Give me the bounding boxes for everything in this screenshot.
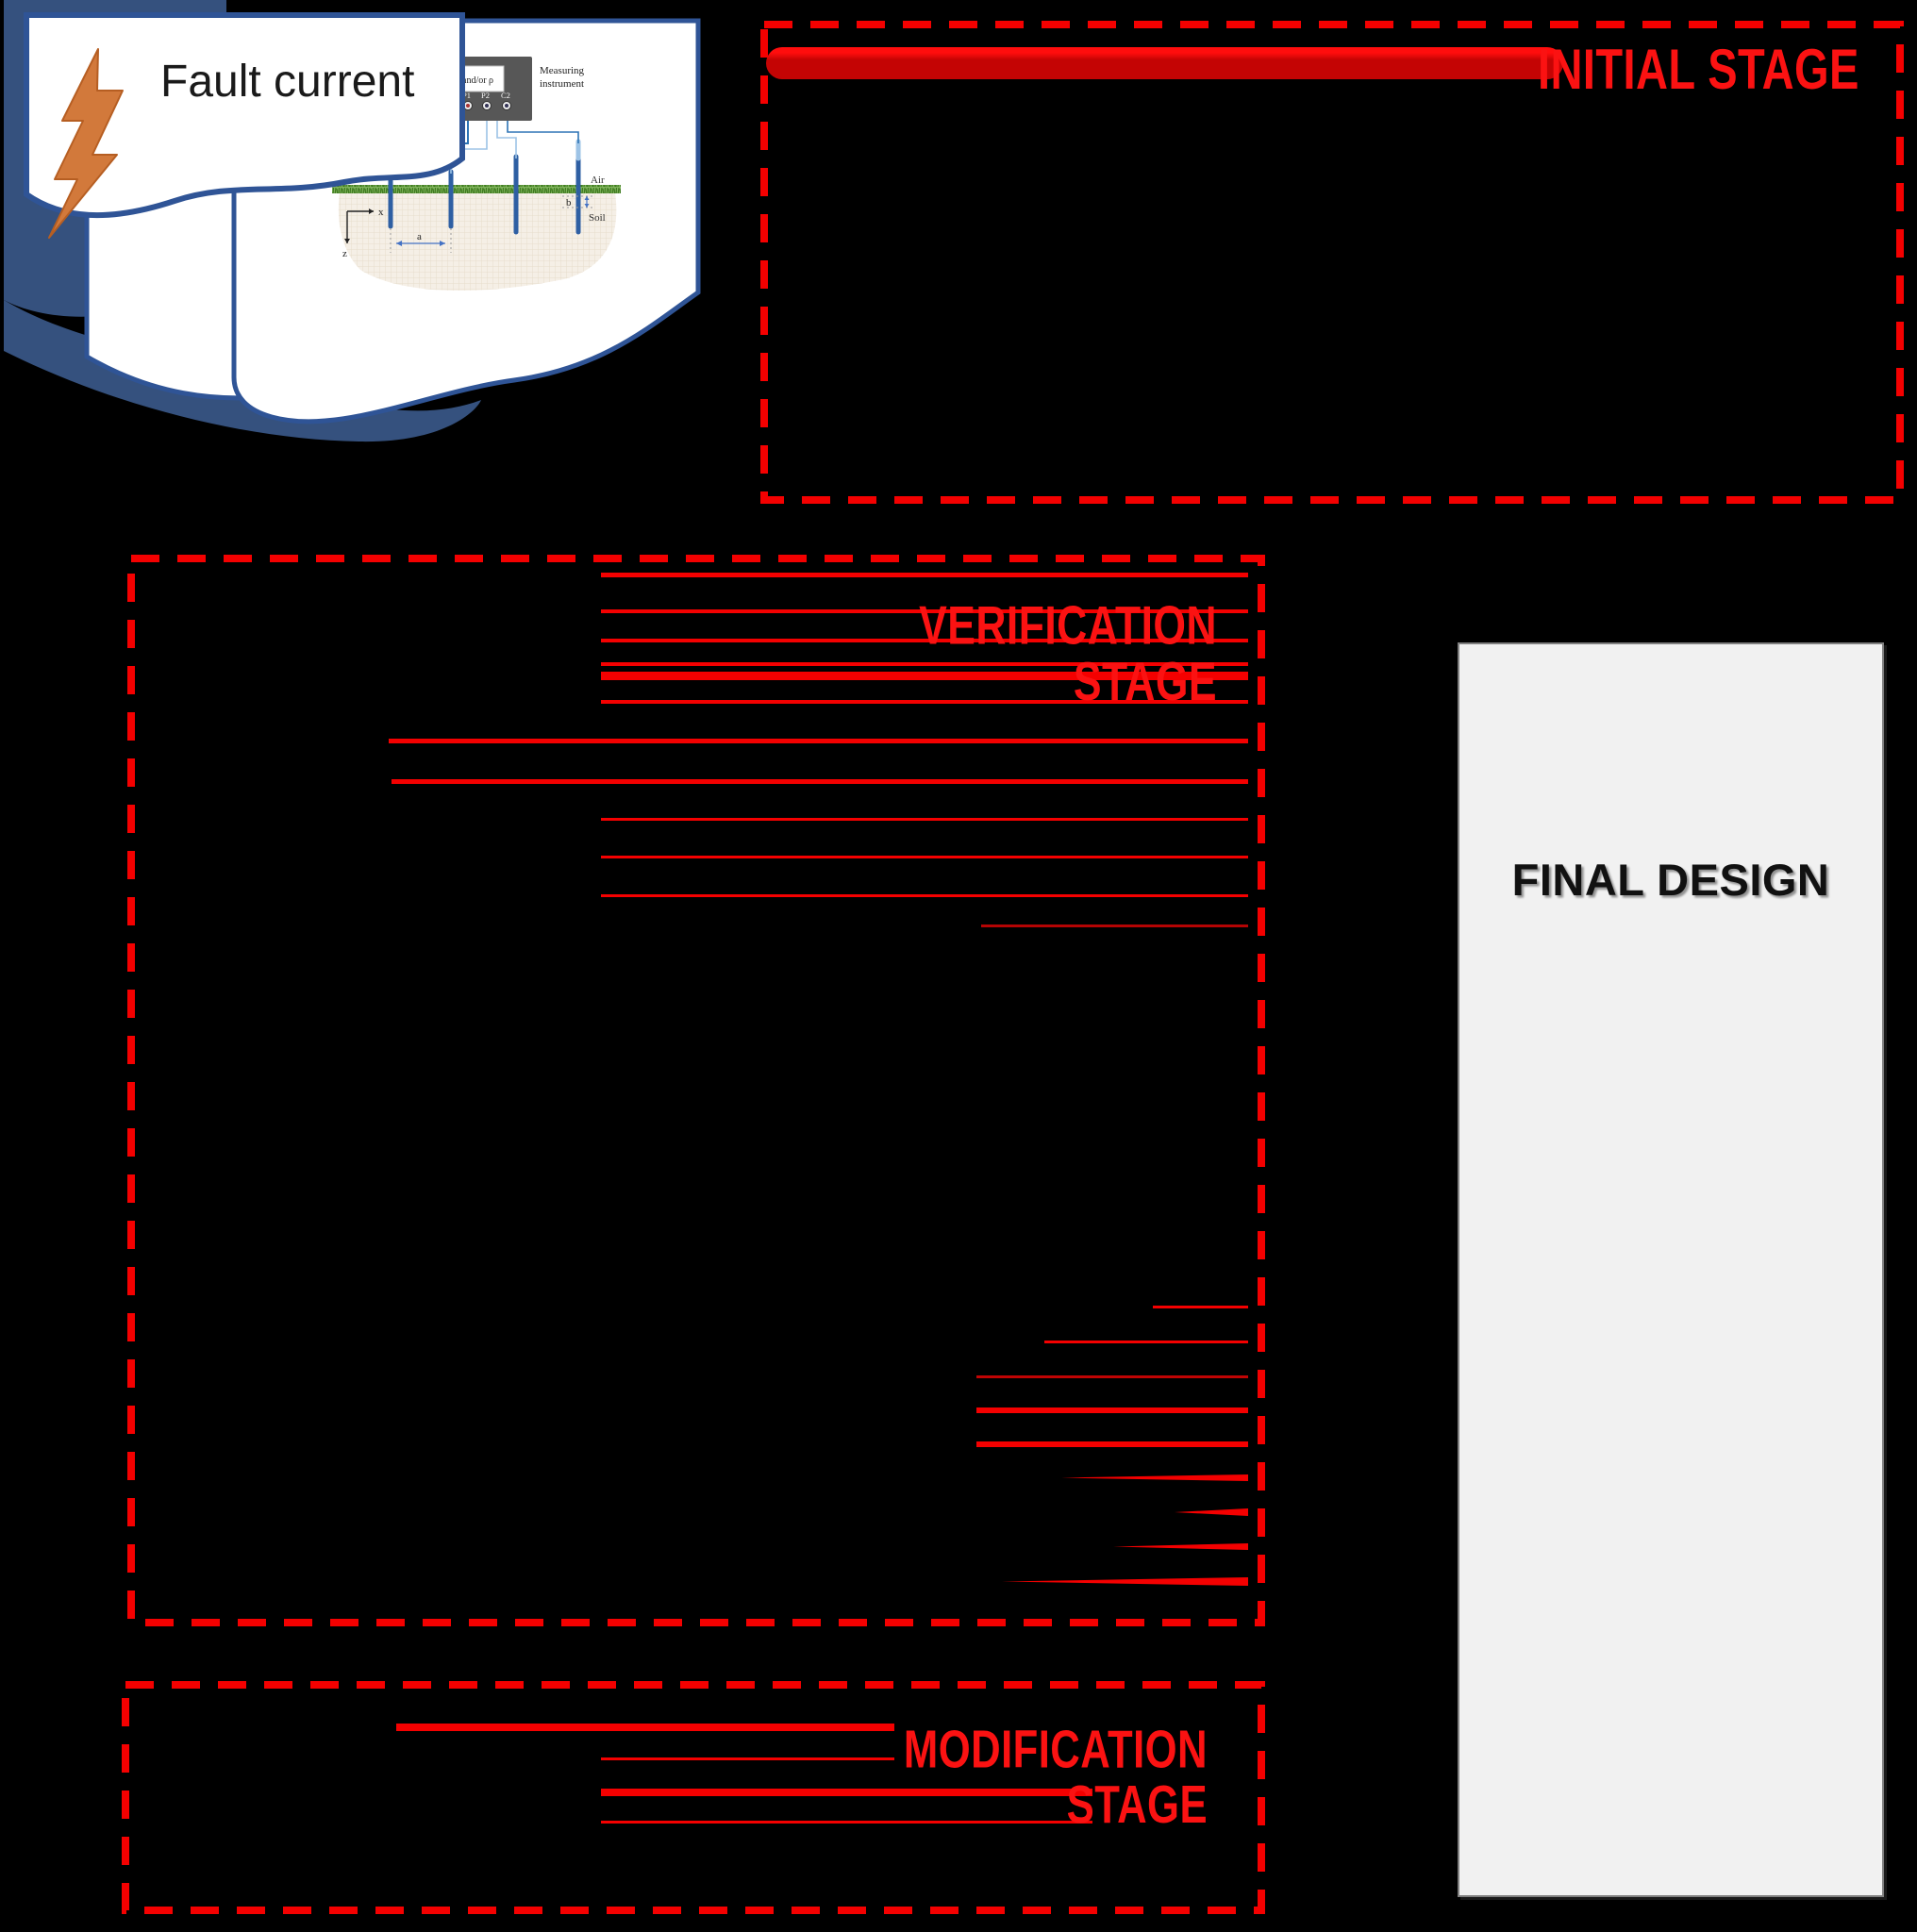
red-line xyxy=(1044,1341,1248,1343)
red-line xyxy=(601,573,1248,577)
slide-canvas: INITIAL STAGE VERIFICATION STAGE MODIFIC… xyxy=(0,0,1917,1932)
verification-stage-label: VERIFICATION STAGE xyxy=(876,598,1217,710)
modification-stage-label-line1: MODIFICATION xyxy=(867,1723,1208,1777)
verification-stage-label-line1: VERIFICATION xyxy=(876,598,1217,655)
documents-cluster: x z xyxy=(0,0,726,500)
initial-stage-label: INITIAL STAGE xyxy=(1538,40,1859,99)
air-label: Air xyxy=(591,175,605,186)
red-line xyxy=(396,1724,894,1731)
axis-z-label: z xyxy=(342,248,347,259)
red-line xyxy=(1113,1543,1248,1550)
red-line xyxy=(601,818,1248,821)
red-line xyxy=(389,739,1248,743)
soil-label: Soil xyxy=(589,212,606,224)
red-line xyxy=(976,1407,1248,1413)
red-line xyxy=(1175,1508,1248,1516)
verification-stage-label-line2: STAGE xyxy=(876,655,1217,711)
red-line xyxy=(601,894,1248,897)
red-line xyxy=(1002,1577,1248,1586)
final-design-label: FINAL DESIGN xyxy=(1459,854,1882,906)
red-line xyxy=(1061,1474,1248,1481)
svg-text:b: b xyxy=(566,197,572,208)
instrument-display-label: and/or ρ xyxy=(462,75,493,86)
red-line xyxy=(601,1757,894,1760)
red-line xyxy=(976,1375,1248,1378)
modification-stage-label: MODIFICATION STAGE xyxy=(867,1723,1208,1833)
svg-text:C2: C2 xyxy=(501,91,510,100)
svg-text:P2: P2 xyxy=(481,91,490,100)
red-line xyxy=(1153,1306,1248,1308)
final-design-panel: FINAL DESIGN xyxy=(1458,642,1884,1897)
red-line xyxy=(976,1441,1248,1447)
fault-current-label: Fault current xyxy=(160,57,414,107)
red-line xyxy=(601,856,1248,858)
red-line xyxy=(981,924,1248,927)
svg-text:a: a xyxy=(417,231,422,242)
modification-stage-label-line2: STAGE xyxy=(867,1777,1208,1832)
axis-x-label: x xyxy=(378,207,384,218)
red-line xyxy=(392,779,1248,784)
